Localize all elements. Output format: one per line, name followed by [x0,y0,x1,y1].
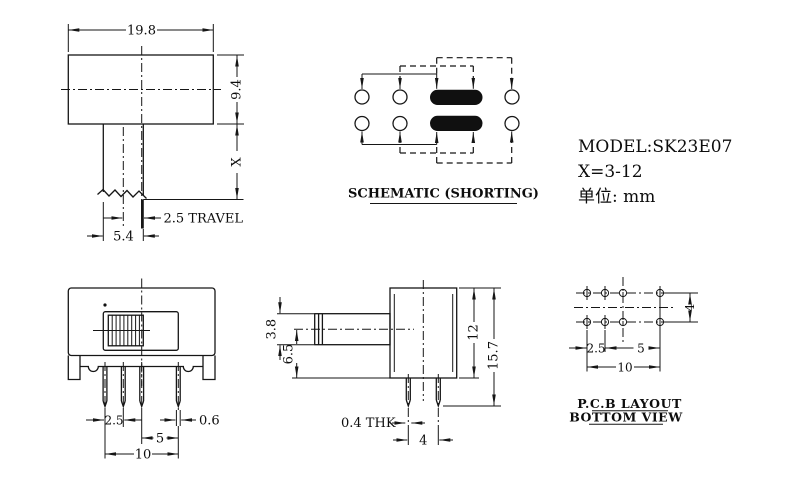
shorting-contact-bar [430,90,483,105]
terminal-circle [393,117,407,131]
pcb-layout-view: 4 2.5 5 10 P.C.B LAYOUT BOTTOM VIEW [569,277,698,425]
drawing-canvas: 19.8 9.4 X 2.5 TRAVEL 5.4 [0,0,800,480]
dim-label-stem-width: 5.4 [113,230,134,245]
dim-label-row-pitch: 4 [683,303,697,311]
shorting-contact-bar [430,116,483,131]
dim-label-handle-height: 3.8 [265,319,280,340]
dim-label-center-height: 6.5 [282,344,297,365]
left-mount-foot [68,356,80,380]
terminal-circle [355,117,369,131]
schematic-diagram: SCHEMATIC (SHORTING) [348,58,539,204]
side-view: 3.8 6.5 12 15.7 0.4 THK 4 [265,280,502,449]
pcb-title-line2: BOTTOM VIEW [569,410,683,425]
pcb-holes [574,277,673,345]
dim-label-hole-pitch-wide: 5 [637,342,645,356]
dim-label-body-height: 12 [467,324,482,341]
dim-label-pin-gap: 4 [419,434,427,449]
dim-label-hole-pitch: 2.5 [586,342,605,356]
dim-label-travel: 2.5 TRAVEL [164,212,244,227]
model-number: MODEL:SK23E07 [578,137,732,157]
front-pins [103,362,180,410]
dim-label-total-pitch: 10 [135,448,152,463]
break-line-zigzag [98,190,147,199]
dim-label-height: 9.4 [230,79,245,100]
terminal-circle [505,90,519,104]
dim-label-total-height: 15.7 [487,341,502,370]
front-view: 2.5 0.6 5 10 [68,279,219,463]
dim-label-pin-pitch: 2.5 [104,414,123,428]
schematic-title: SCHEMATIC (SHORTING) [348,187,539,202]
dim-label-stem-height: X [230,157,245,167]
x-dimension-range: X=3-12 [578,162,643,182]
model-info-block: MODEL:SK23E07 X=3-12 单位: mm [578,137,732,207]
top-side-view: 19.8 9.4 X 2.5 TRAVEL 5.4 [61,24,245,245]
terminal-circle [505,117,519,131]
dim-label-pitch-wide: 5 [156,432,164,447]
terminal-circle [355,90,369,104]
dim-label-pin-width: 0.6 [199,414,220,429]
position-dot [103,303,106,306]
dim-label-width: 19.8 [127,24,156,39]
right-mount-foot [203,356,215,380]
dim-label-pin-thickness: 0.4 THK [341,416,396,431]
unit-note: 单位: mm [578,187,655,207]
terminal-circle [393,90,407,104]
technical-drawing-sheet: 19.8 9.4 X 2.5 TRAVEL 5.4 [0,0,800,480]
dim-label-hole-total: 10 [617,361,632,375]
